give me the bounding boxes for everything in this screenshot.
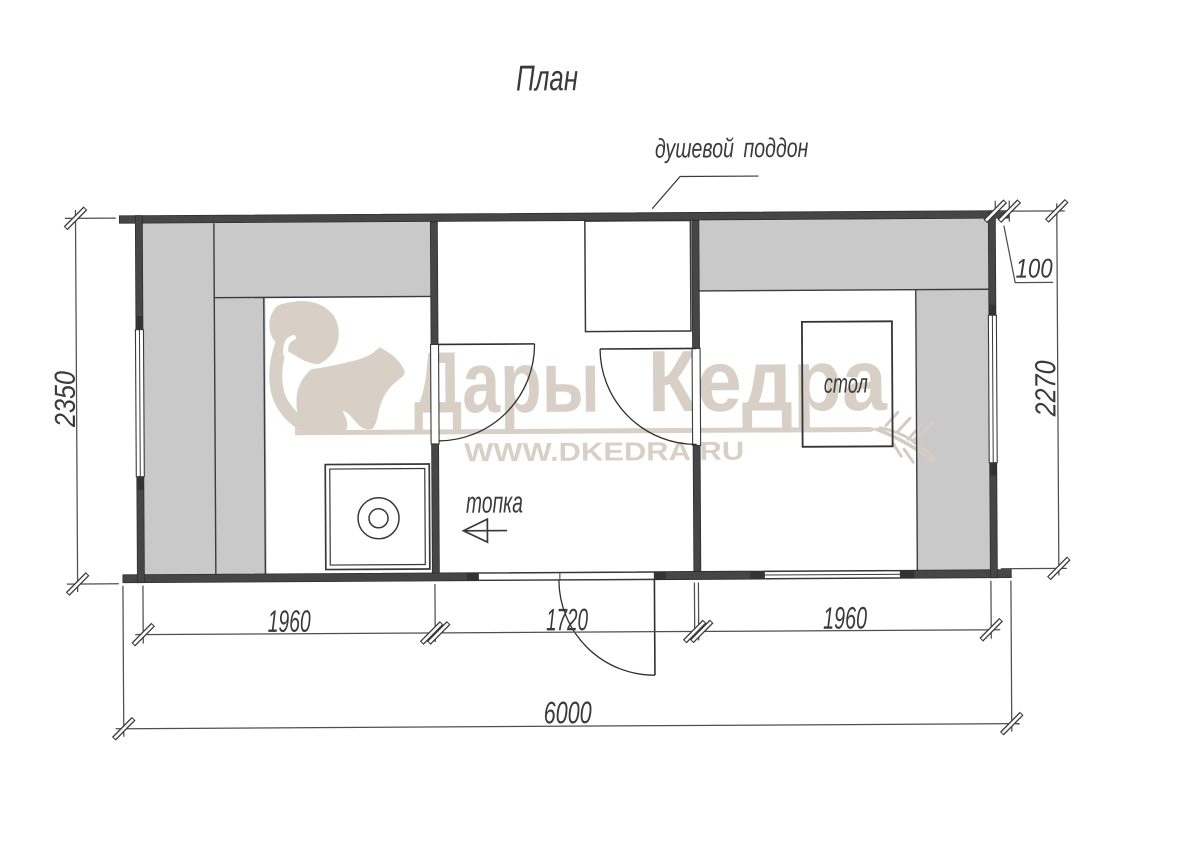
svg-text:2350: 2350 xyxy=(50,371,82,428)
svg-text:топка: топка xyxy=(466,486,523,519)
svg-text:2270: 2270 xyxy=(1030,360,1062,417)
svg-text:6000: 6000 xyxy=(544,695,592,730)
svg-text:поддон: поддон xyxy=(743,133,808,163)
svg-text:душевой: душевой xyxy=(655,133,734,163)
svg-text:100: 100 xyxy=(1016,253,1053,283)
svg-text:стол: стол xyxy=(824,368,868,398)
svg-text:План: План xyxy=(516,57,578,98)
svg-text:1960: 1960 xyxy=(268,604,311,639)
svg-text:1720: 1720 xyxy=(546,602,588,637)
svg-text:1960: 1960 xyxy=(823,600,867,635)
svg-text:Дары: Дары xyxy=(413,334,600,432)
svg-text:WWW.DKEDRA.RU: WWW.DKEDRA.RU xyxy=(464,436,744,468)
